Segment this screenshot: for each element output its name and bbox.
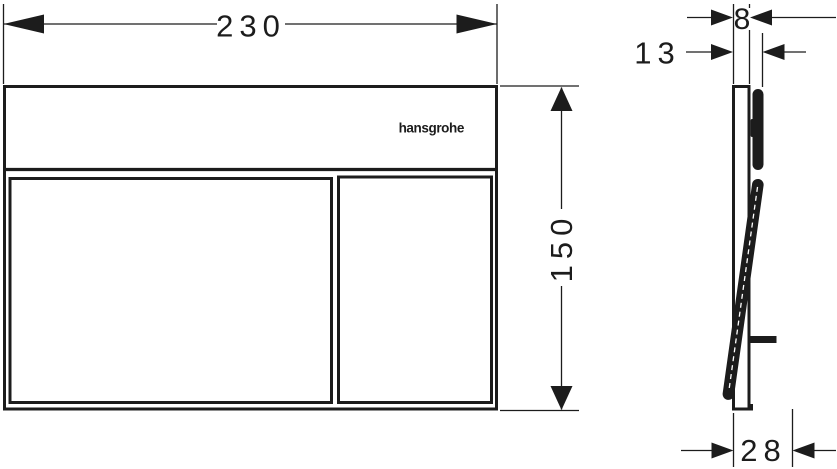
- front-view: hansgrohe: [3, 87, 497, 410]
- side-view: [722, 87, 777, 411]
- dimension-height: 150: [500, 86, 579, 411]
- flush-button-small: [339, 177, 492, 403]
- brand-logo: hansgrohe: [399, 121, 465, 136]
- plate-foot-detail: [748, 404, 754, 411]
- button-pivot-link: [749, 336, 777, 343]
- technical-drawing-page: hansgrohe 230 150: [0, 0, 837, 469]
- dimension-frame-depth: 13: [634, 33, 806, 87]
- arrowhead-right-icon: [711, 10, 733, 26]
- arrowhead-up-icon: [551, 87, 573, 111]
- dimension-width: 230: [4, 4, 498, 84]
- arrowhead-left-icon: [793, 443, 815, 459]
- plate-depth-value-label: 8: [734, 3, 751, 36]
- arrowhead-left-icon: [4, 15, 45, 34]
- arrowhead-left-icon: [750, 10, 772, 26]
- flush-button-large: [10, 179, 332, 403]
- button-clip-detail: [751, 119, 754, 137]
- arrowhead-left-icon: [763, 44, 785, 60]
- upper-button-profile: [753, 89, 764, 170]
- arrowhead-down-icon: [551, 386, 573, 410]
- width-value-label: 230: [216, 9, 286, 44]
- open-depth-value-label: 28: [740, 433, 786, 468]
- arrowhead-right-icon: [712, 443, 734, 459]
- flush-plate-dimension-drawing: hansgrohe 230 150: [0, 0, 837, 469]
- frame-depth-value-label: 13: [634, 36, 680, 71]
- dimension-open-depth: 28: [681, 409, 836, 468]
- dimension-plate-depth: 8: [687, 3, 836, 84]
- arrowhead-right-icon: [457, 15, 498, 34]
- arrowhead-right-icon: [711, 44, 733, 60]
- height-value-label: 150: [544, 213, 579, 283]
